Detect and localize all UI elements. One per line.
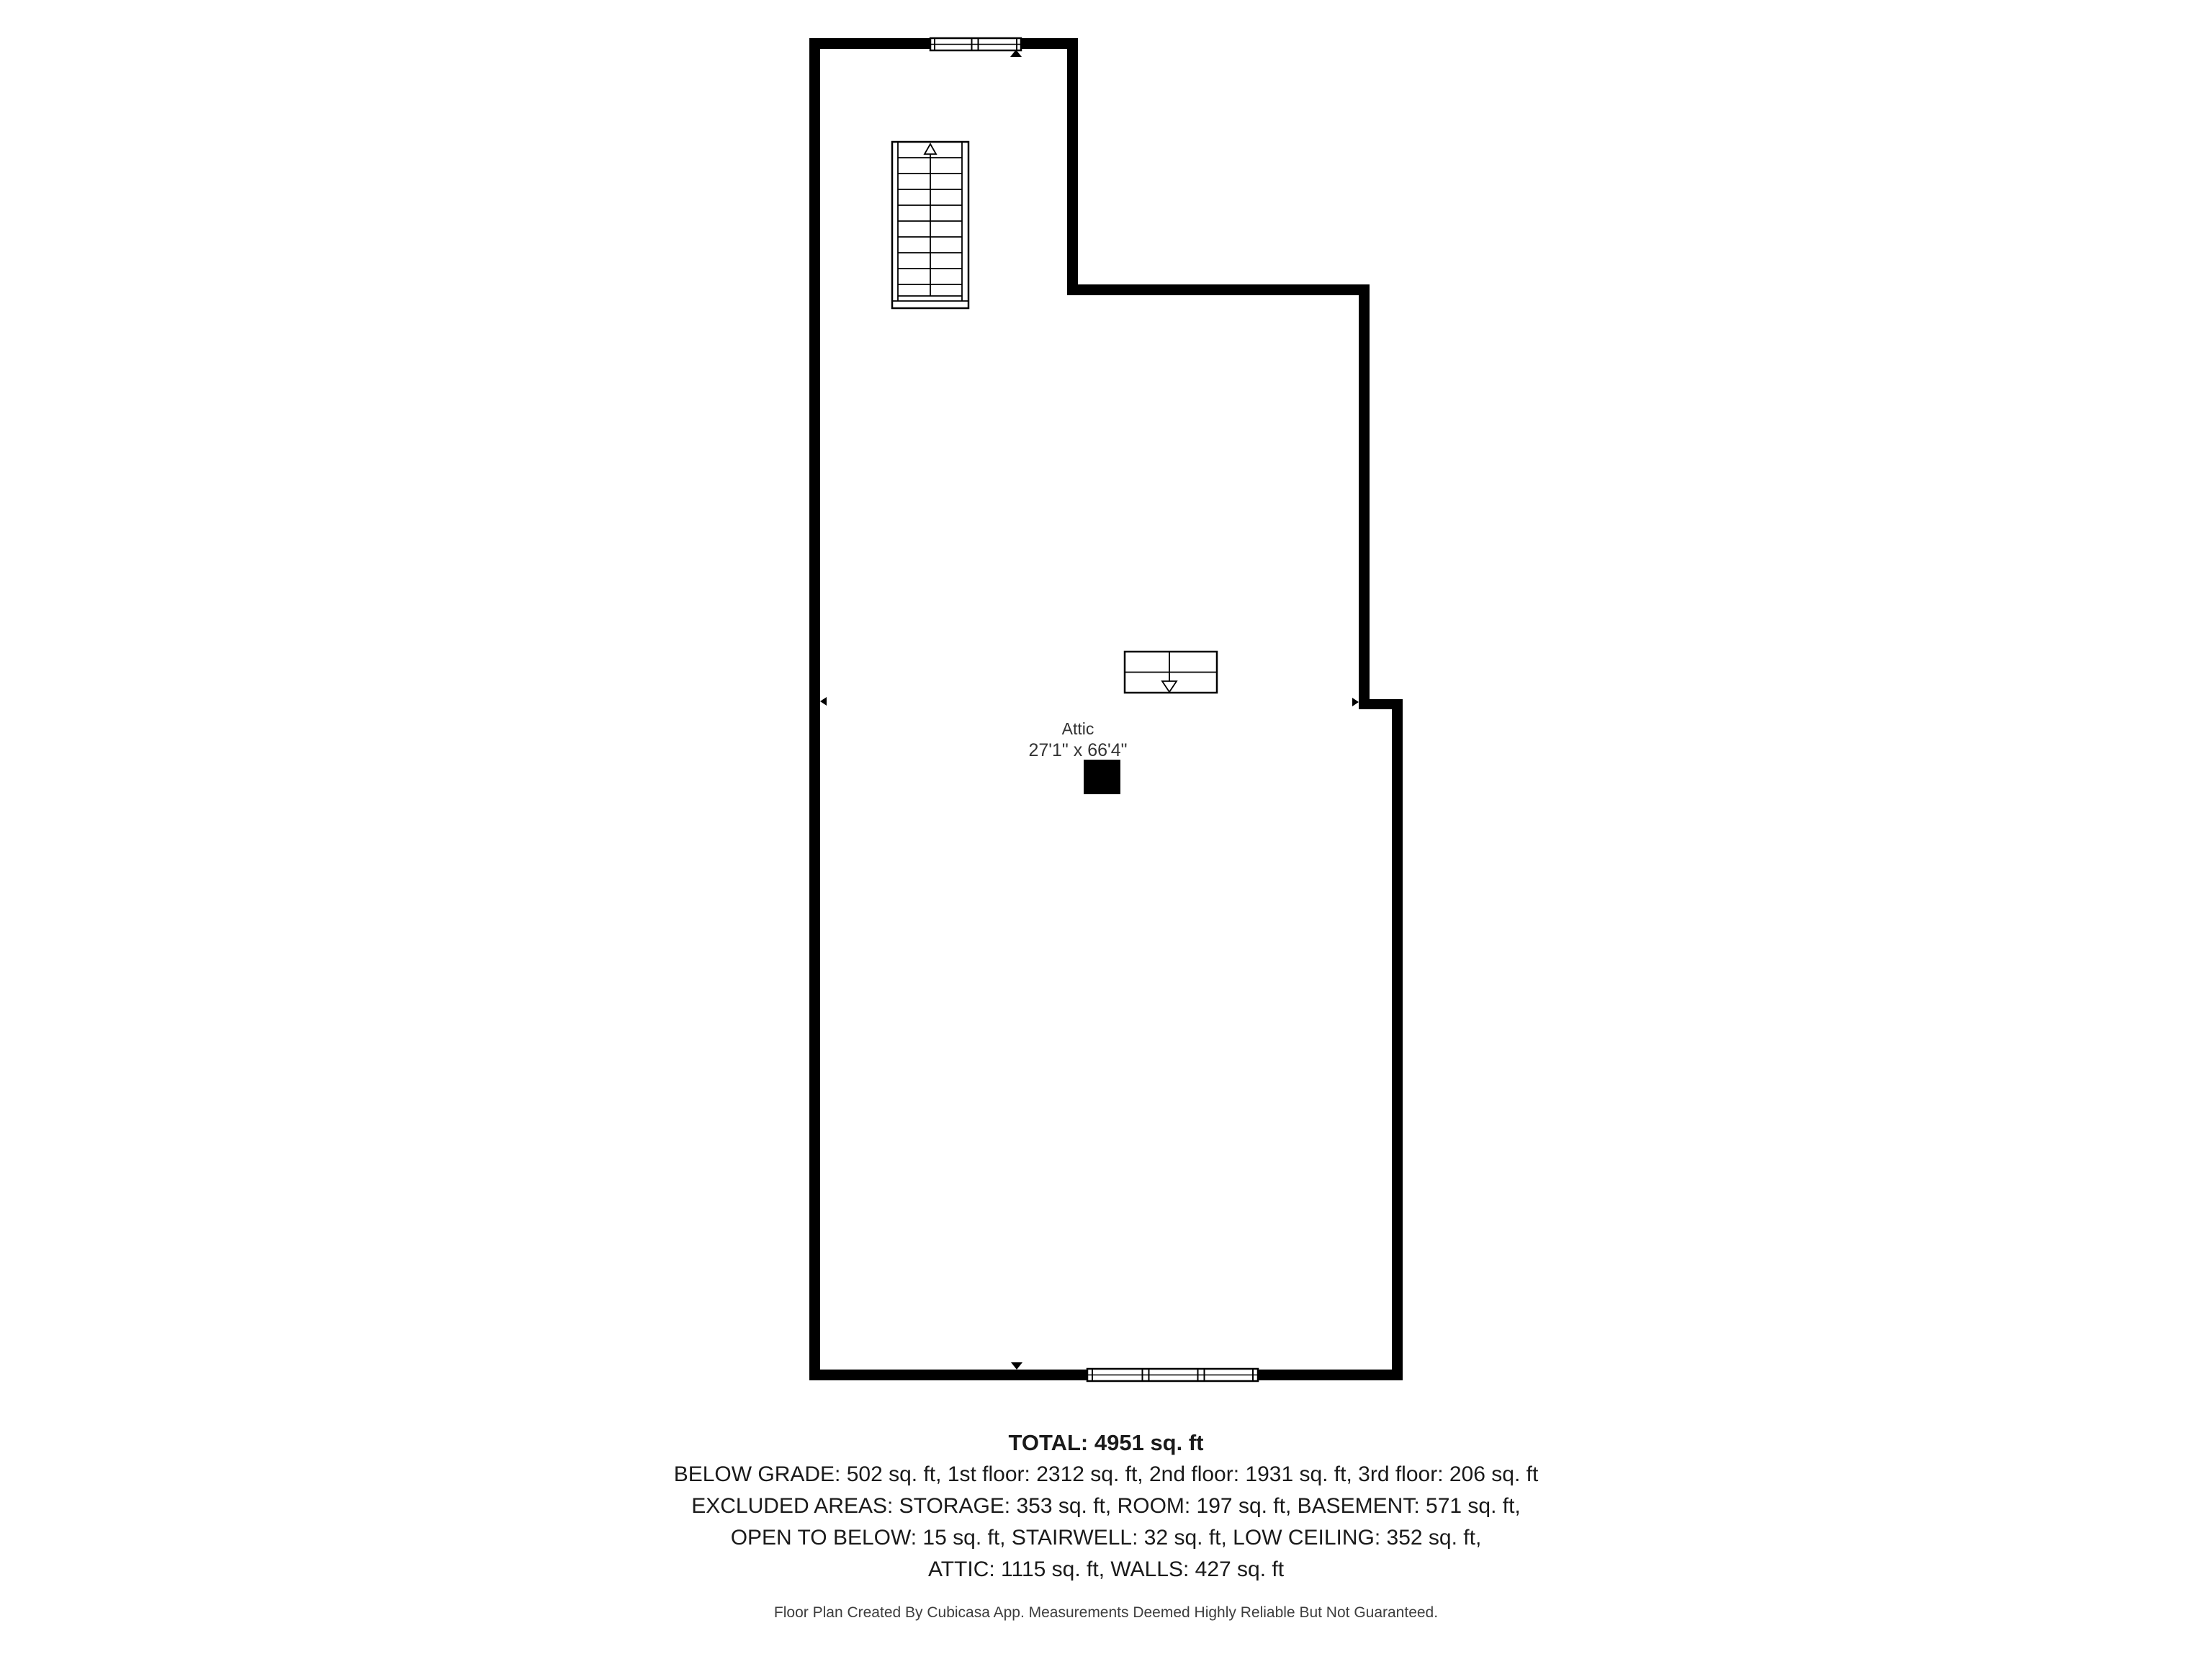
dimension-arrow-left-icon (820, 697, 827, 706)
summary-total: TOTAL: 4951 sq. ft (0, 1427, 2212, 1459)
wall-notch (1067, 284, 1370, 295)
room-dimensions: 27'1" x 66'4" (970, 739, 1186, 761)
wall-upper-right (1067, 38, 1078, 295)
chimney (1084, 760, 1120, 794)
stairs-down-icon (1123, 650, 1218, 695)
dimension-arrow-top-icon (1010, 50, 1022, 57)
room-label: Attic 27'1" x 66'4" (970, 718, 1186, 761)
top-window-icon (929, 37, 1022, 52)
dimension-arrow-bottom-icon (1011, 1362, 1022, 1370)
wall-left (809, 38, 820, 1380)
floor-plan-page: Attic 27'1" x 66'4" TOTAL: 4951 sq. ft B… (0, 0, 2212, 1659)
room-name: Attic (970, 718, 1186, 739)
summary-line-open: OPEN TO BELOW: 15 sq. ft, STAIRWELL: 32 … (0, 1522, 2212, 1554)
summary-line-attic: ATTIC: 1115 sq. ft, WALLS: 427 sq. ft (0, 1554, 2212, 1586)
dimension-arrow-right-icon (1352, 698, 1359, 706)
staircase-up-icon (891, 140, 971, 310)
summary-line-floors: BELOW GRADE: 502 sq. ft, 1st floor: 2312… (0, 1459, 2212, 1491)
area-summary: TOTAL: 4951 sq. ft BELOW GRADE: 502 sq. … (0, 1427, 2212, 1586)
wall-lower-right (1392, 699, 1403, 1380)
wall-mid-right (1359, 284, 1370, 709)
bottom-window-icon (1086, 1367, 1259, 1382)
summary-line-excluded: EXCLUDED AREAS: STORAGE: 353 sq. ft, ROO… (0, 1491, 2212, 1522)
footer-disclaimer: Floor Plan Created By Cubicasa App. Meas… (0, 1604, 2212, 1622)
